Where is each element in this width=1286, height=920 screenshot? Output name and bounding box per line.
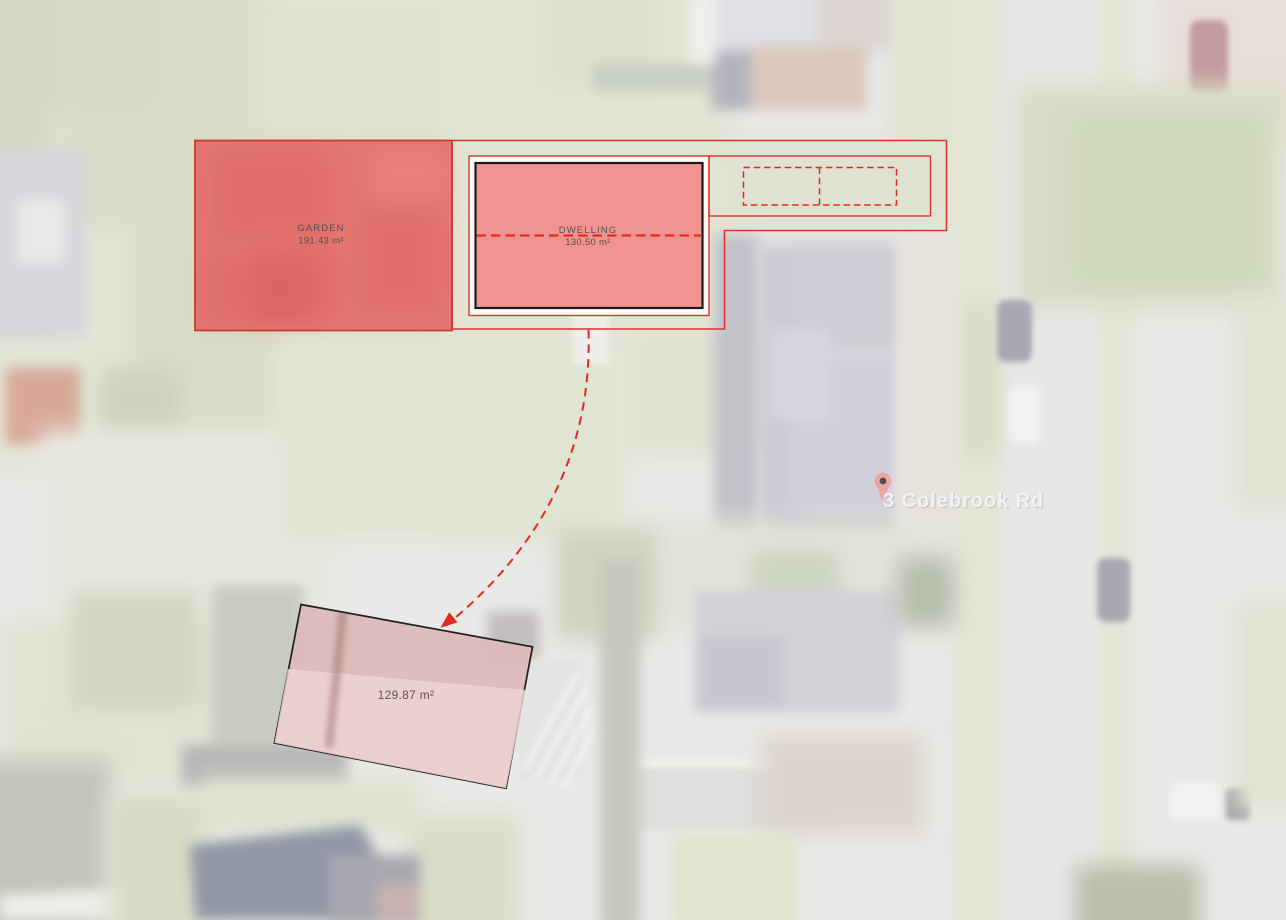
svg-text:191.43 m²: 191.43 m²	[298, 236, 343, 247]
svg-text:DWELLING: DWELLING	[559, 225, 617, 236]
svg-text:130.50 m²: 130.50 m²	[565, 237, 610, 248]
svg-text:3 Colebrook Rd: 3 Colebrook Rd	[883, 490, 1044, 512]
svg-text:129.87 m²: 129.87 m²	[378, 688, 435, 702]
svg-text:GARDEN: GARDEN	[297, 223, 344, 234]
